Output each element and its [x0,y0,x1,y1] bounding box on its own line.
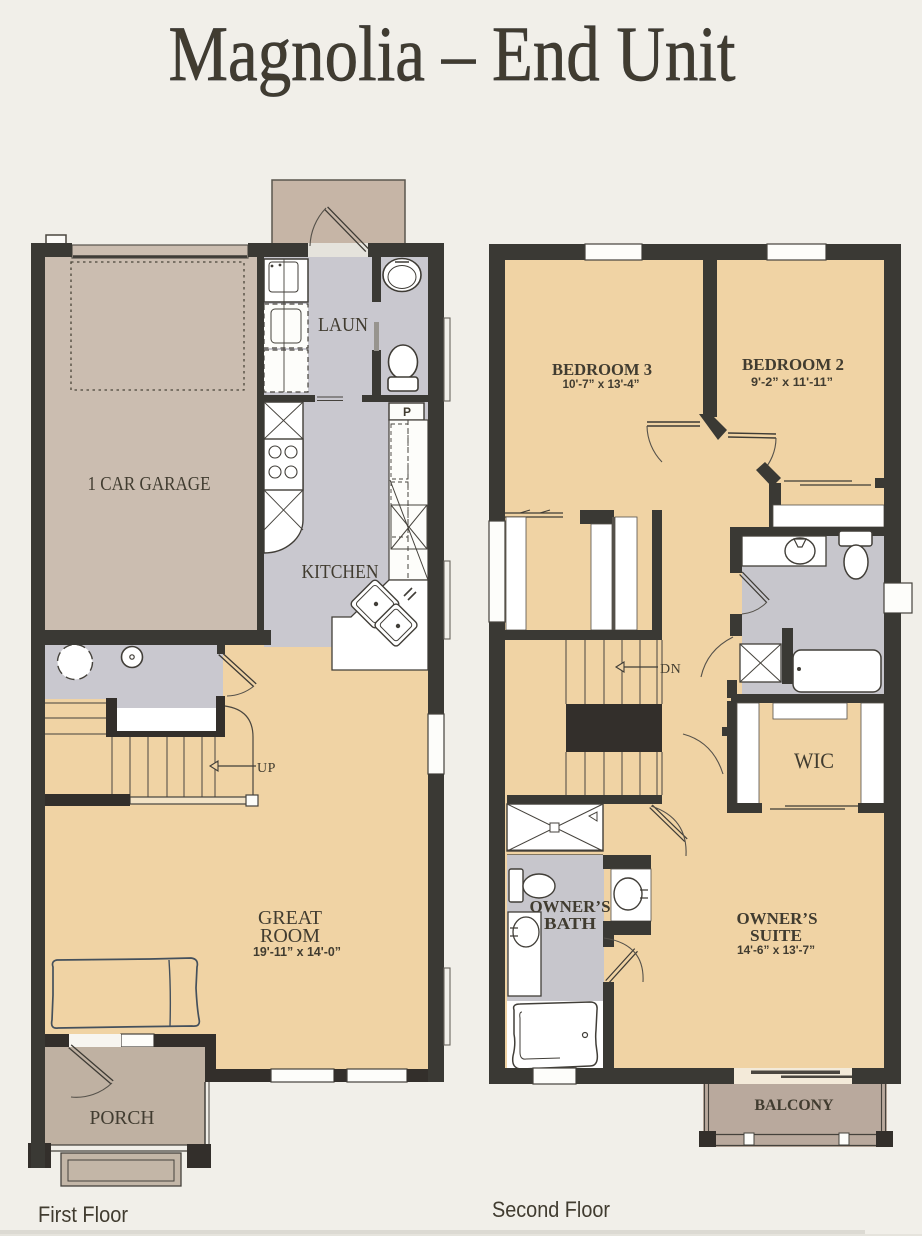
svg-text:14'-6” x 13'-7”: 14'-6” x 13'-7” [737,945,815,957]
svg-text:10'-7” x 13'-4”: 10'-7” x 13'-4” [563,379,640,391]
svg-text:SUITE: SUITE [750,926,802,945]
svg-text:WIC: WIC [794,748,834,773]
svg-text:BALCONY: BALCONY [755,1097,834,1114]
svg-text:UP: UP [257,761,276,776]
svg-text:9'-2” x 11'-11”: 9'-2” x 11'-11” [751,377,833,389]
svg-text:19'-11” x 14'-0”: 19'-11” x 14'-0” [253,945,341,959]
svg-text:Second Floor: Second Floor [492,1197,610,1222]
svg-text:BEDROOM 3: BEDROOM 3 [552,360,652,379]
svg-text:Magnolia – End Unit: Magnolia – End Unit [169,10,736,97]
svg-text:P: P [403,405,411,419]
svg-text:ROOM: ROOM [260,925,320,947]
svg-text:PORCH: PORCH [90,1107,155,1129]
svg-text:DN: DN [660,662,681,677]
svg-text:First Floor: First Floor [38,1202,128,1227]
svg-text:BATH: BATH [544,914,596,933]
svg-text:1 CAR GARAGE: 1 CAR GARAGE [88,473,211,495]
svg-text:KITCHEN: KITCHEN [302,561,379,583]
svg-text:LAUN: LAUN [318,314,368,336]
svg-text:BEDROOM 2: BEDROOM 2 [742,355,844,374]
